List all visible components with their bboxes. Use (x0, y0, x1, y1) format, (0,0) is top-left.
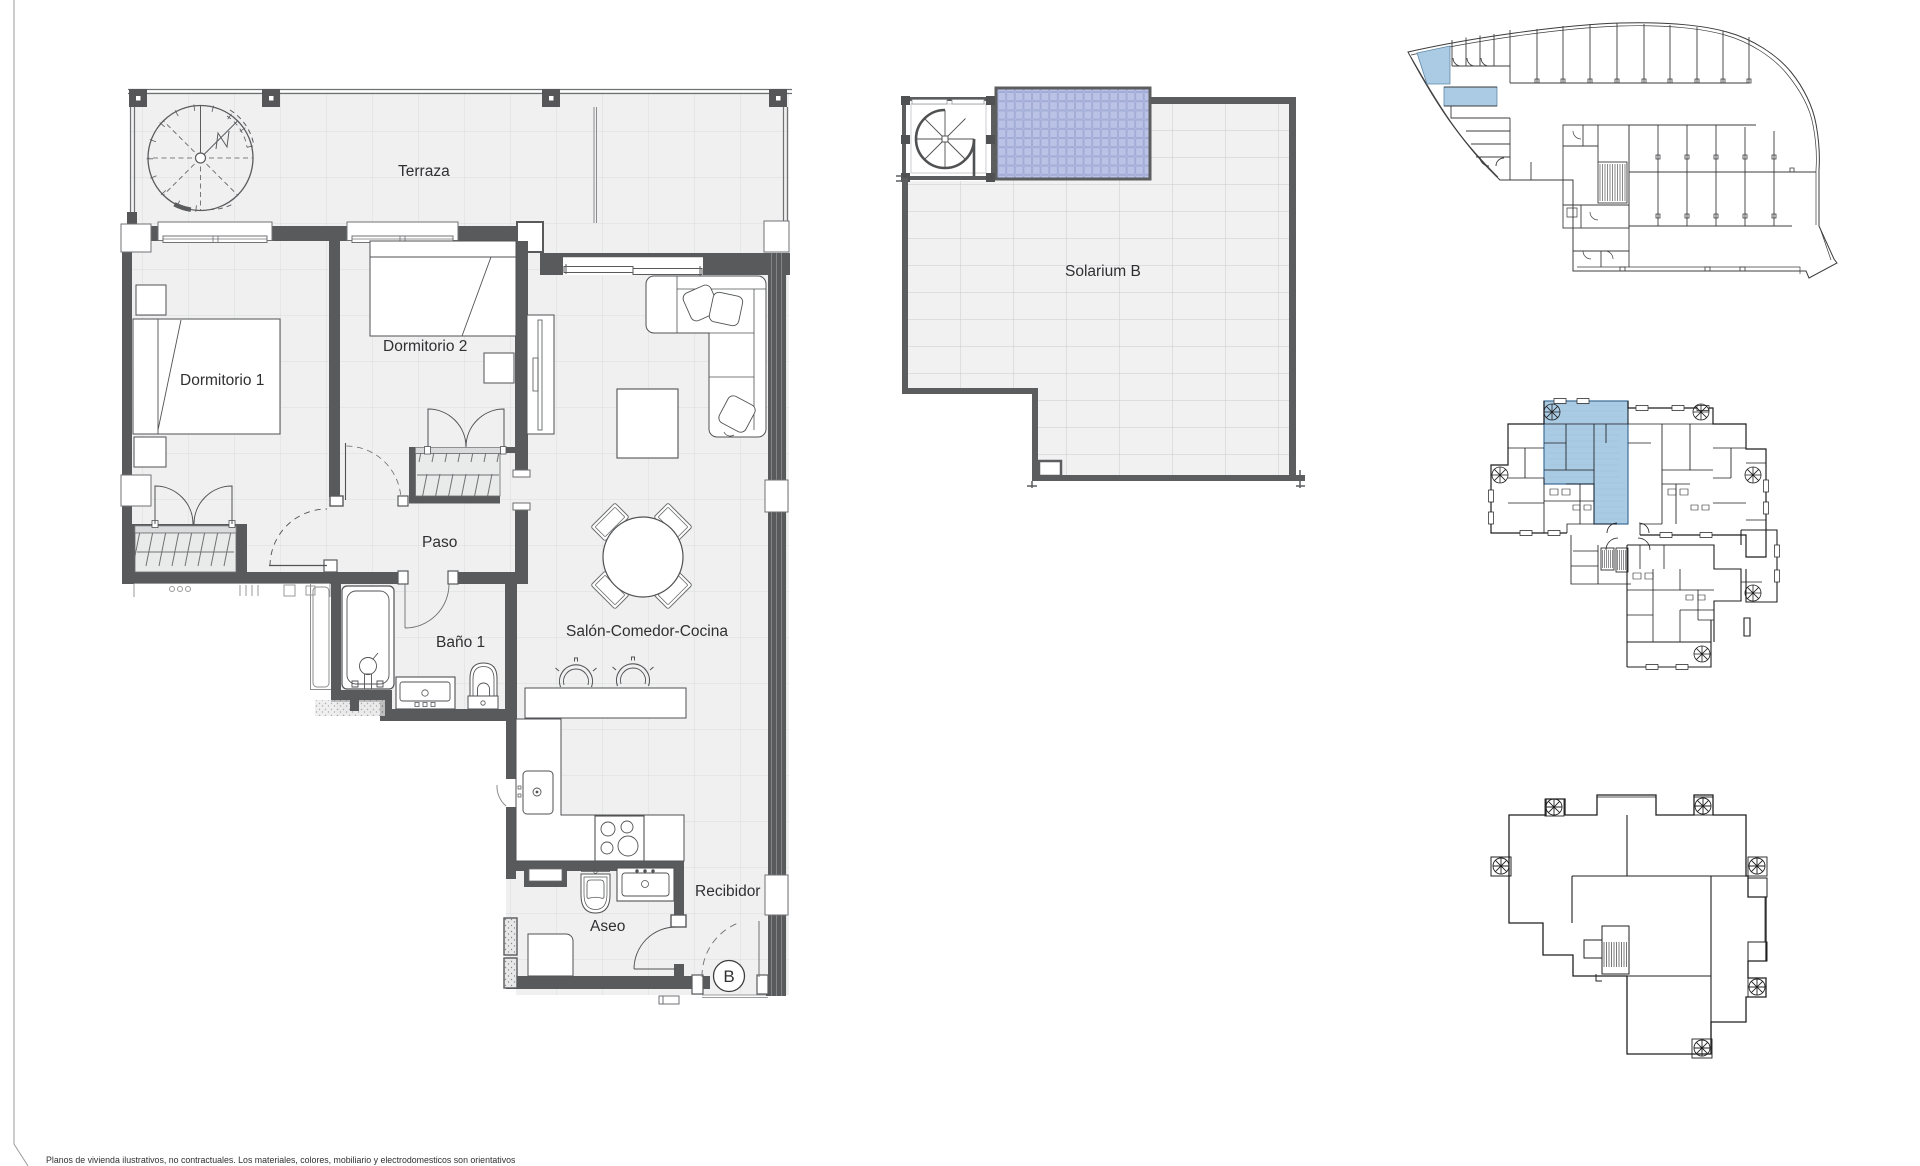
svg-text:Salón-Comedor-Cocina: Salón-Comedor-Cocina (566, 623, 728, 640)
svg-text:B: B (723, 967, 734, 986)
svg-text:Solarium B: Solarium B (1065, 263, 1141, 280)
svg-text:Paso: Paso (422, 534, 457, 551)
svg-text:Recibidor: Recibidor (695, 883, 760, 900)
svg-text:Dormitorio 1: Dormitorio 1 (180, 372, 264, 389)
svg-text:Terraza: Terraza (398, 163, 450, 180)
svg-text:Aseo: Aseo (590, 918, 625, 935)
svg-text:Dormitorio 2: Dormitorio 2 (383, 338, 467, 355)
svg-text:Baño 1: Baño 1 (436, 634, 485, 651)
svg-text:Planos de vivienda ilustrativo: Planos de vivienda ilustrativos, no cont… (46, 1155, 516, 1165)
